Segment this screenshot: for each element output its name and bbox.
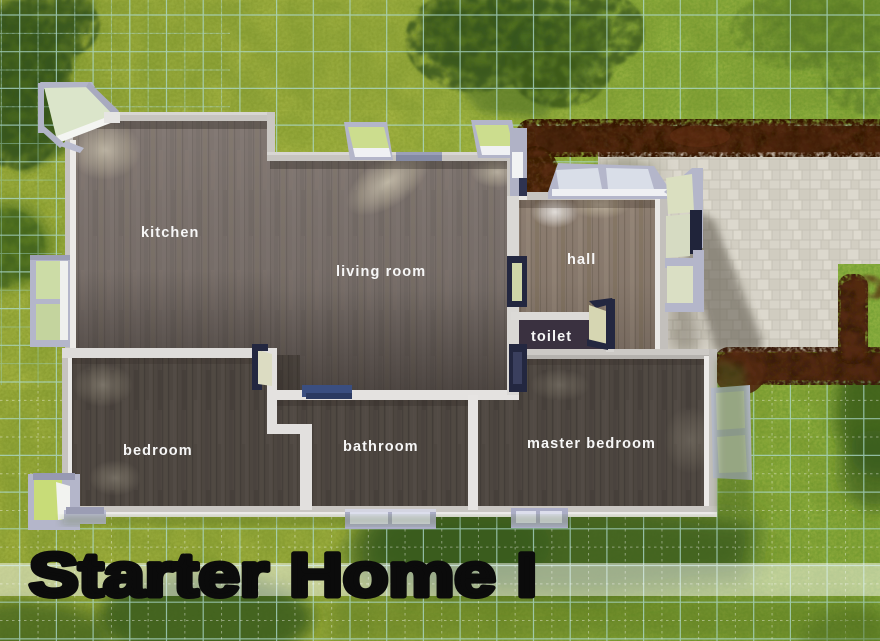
svg-text:toilet: toilet [531,329,572,345]
svg-text:kitchen: kitchen [141,225,199,241]
svg-text:Starter Home I: Starter Home I [29,541,537,609]
svg-text:bedroom: bedroom [123,443,193,459]
svg-text:bathroom: bathroom [343,439,419,455]
svg-text:living room: living room [336,264,426,280]
svg-text:master bedroom: master bedroom [527,436,656,452]
svg-text:hall: hall [567,252,596,268]
